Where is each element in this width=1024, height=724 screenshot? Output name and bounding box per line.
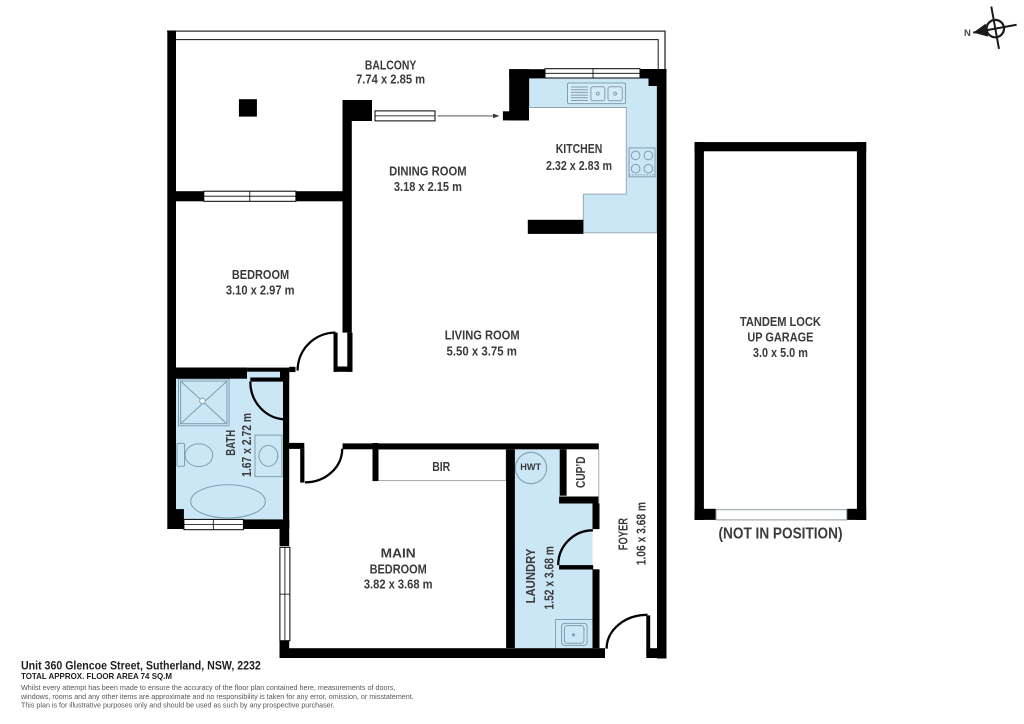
svg-text:BATH: BATH [223,430,238,456]
svg-text:2.32 x 2.83 m: 2.32 x 2.83 m [546,158,612,173]
svg-text:windows, rooms and any other i: windows, rooms and any other items are a… [20,693,414,701]
svg-text:MAIN: MAIN [381,546,416,561]
svg-text:FOYER: FOYER [615,517,630,550]
svg-text:3.82 x 3.68 m: 3.82 x 3.68 m [364,577,433,592]
svg-text:N: N [964,28,971,39]
svg-text:BALCONY: BALCONY [365,58,417,73]
svg-text:1.67 x 2.72 m: 1.67 x 2.72 m [239,413,254,477]
svg-text:TANDEM LOCK: TANDEM LOCK [740,314,822,329]
svg-text:LIVING ROOM: LIVING ROOM [445,327,520,342]
svg-text:KITCHEN: KITCHEN [556,141,603,156]
svg-text:3.18 x 2.15 m: 3.18 x 2.15 m [394,179,462,194]
svg-text:(NOT IN POSITION): (NOT IN POSITION) [719,526,843,543]
svg-text:This plan is for illustrative: This plan is for illustrative purposes o… [21,702,335,710]
svg-text:3.0 x 5.0 m: 3.0 x 5.0 m [753,345,808,360]
svg-text:UP GARAGE: UP GARAGE [747,329,813,344]
svg-text:1.06 x 3.68 m: 1.06 x 3.68 m [634,502,649,565]
svg-text:Whilst every attempt has been: Whilst every attempt has been made to en… [21,684,396,692]
svg-text:LAUNDRY: LAUNDRY [523,548,538,603]
svg-text:BIR: BIR [432,459,450,474]
svg-text:HWT: HWT [520,462,541,472]
svg-text:5.50 x 3.75 m: 5.50 x 3.75 m [447,344,517,359]
svg-text:TOTAL APPROX. FLOOR AREA 74 SQ: TOTAL APPROX. FLOOR AREA 74 SQ.M [21,672,172,681]
svg-text:Unit 360 Glencoe Street, Suthe: Unit 360 Glencoe Street, Sutherland, NSW… [21,661,261,673]
svg-text:BEDROOM: BEDROOM [232,267,289,282]
svg-text:CUP’D: CUP’D [573,456,588,488]
svg-text:3.10 x 2.97 m: 3.10 x 2.97 m [226,283,295,298]
svg-text:DINING ROOM: DINING ROOM [389,164,467,179]
svg-text:7.74 x 2.85 m: 7.74 x 2.85 m [356,72,425,87]
svg-text:1.52 x 3.68 m: 1.52 x 3.68 m [542,546,557,609]
svg-text:BEDROOM: BEDROOM [370,561,427,576]
